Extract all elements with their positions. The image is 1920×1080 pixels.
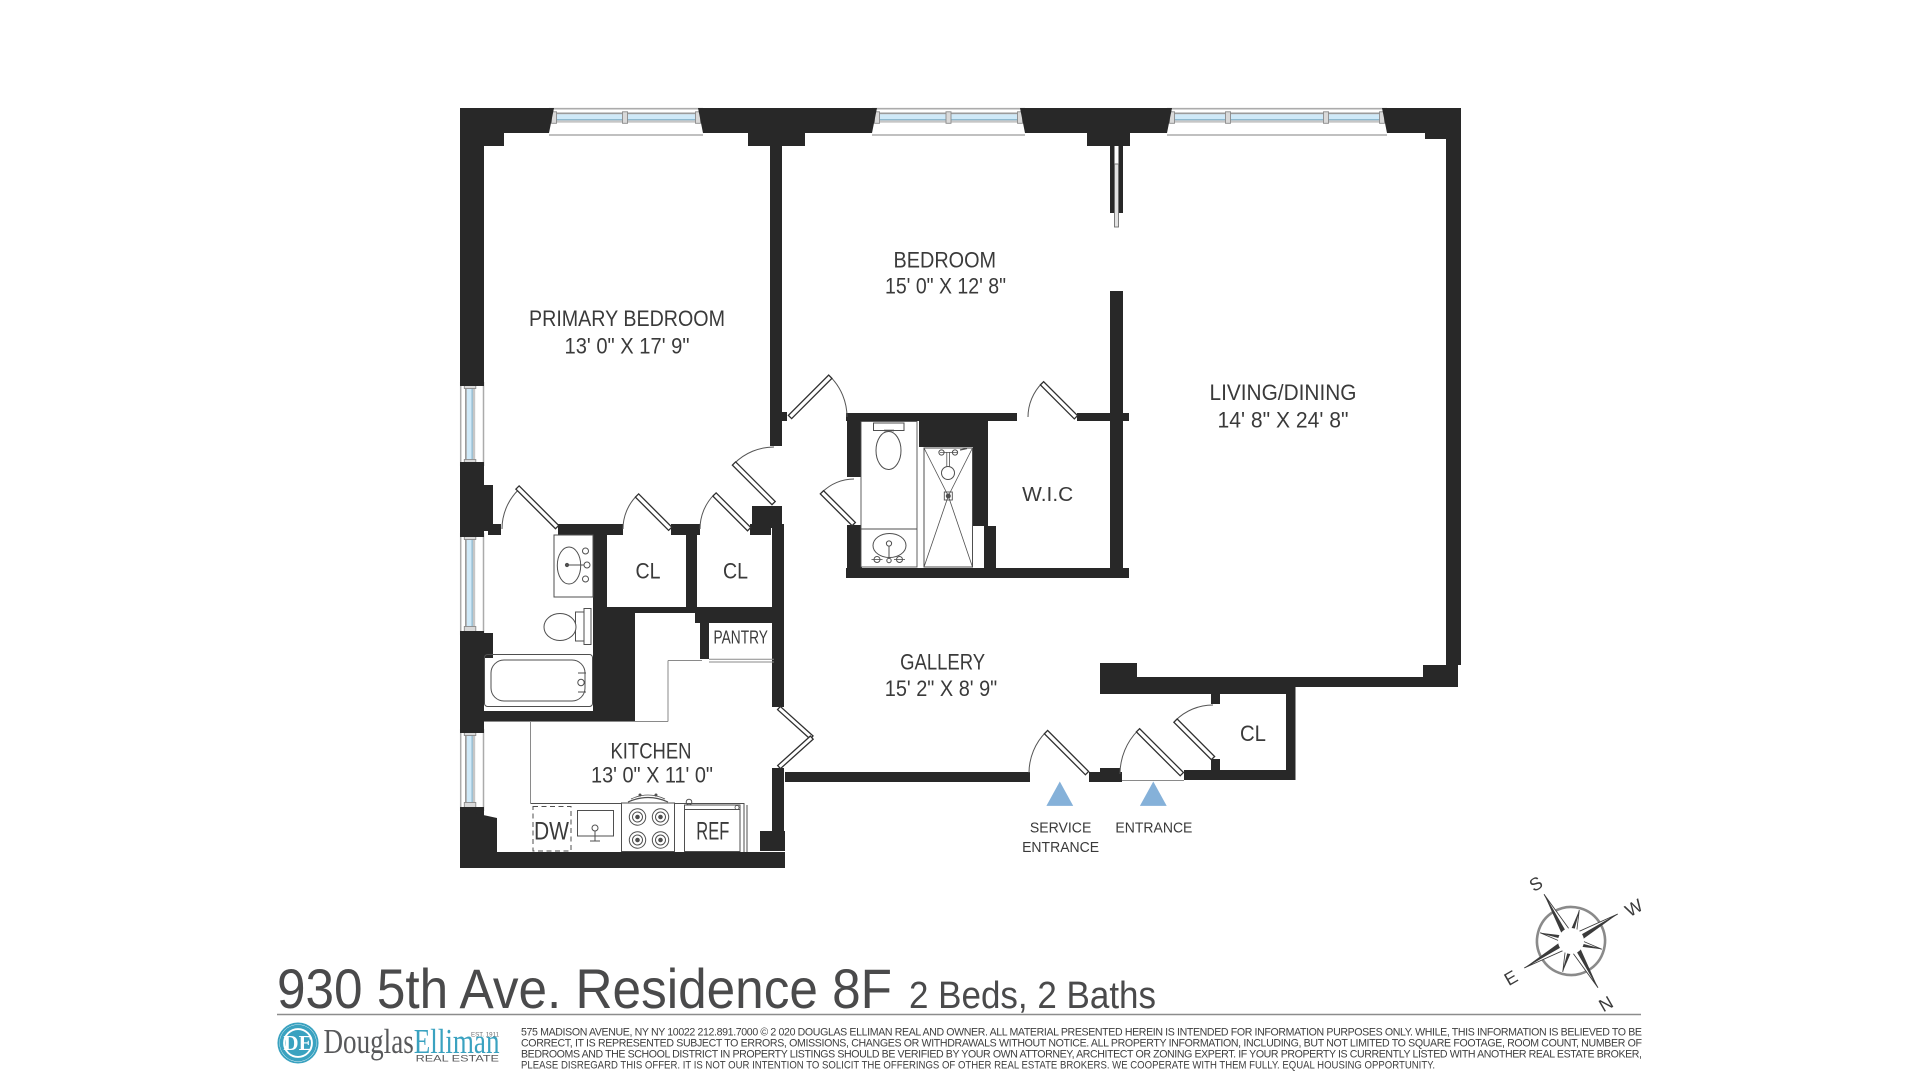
svg-text:DE: DE — [283, 1031, 312, 1055]
svg-text:SERVICE: SERVICE — [1030, 821, 1092, 837]
svg-text:ENTRANCE: ENTRANCE — [1115, 821, 1192, 837]
svg-text:13' 0" X 11' 0": 13' 0" X 11' 0" — [591, 763, 713, 788]
svg-text:KITCHEN: KITCHEN — [611, 739, 692, 764]
svg-text:13' 0" X 17' 9": 13' 0" X 17' 9" — [565, 334, 690, 359]
svg-text:14' 8" X 24' 8": 14' 8" X 24' 8" — [1218, 408, 1349, 433]
svg-text:CL: CL — [636, 559, 661, 584]
svg-text:BEDROOM: BEDROOM — [894, 248, 997, 273]
svg-text:REF: REF — [696, 818, 729, 846]
svg-text:15' 0" X 12' 8": 15' 0" X 12' 8" — [885, 273, 1006, 298]
svg-text:GALLERY: GALLERY — [900, 649, 985, 674]
svg-text:CL: CL — [1240, 721, 1266, 746]
svg-text:CL: CL — [723, 559, 748, 584]
svg-text:930 5th Ave. Residence 8F: 930 5th Ave. Residence 8F — [277, 957, 892, 1020]
svg-text:15' 2" X 8' 9": 15' 2" X 8' 9" — [885, 676, 998, 701]
svg-text:REAL ESTATE: REAL ESTATE — [416, 1054, 499, 1065]
svg-text:ENTRANCE: ENTRANCE — [1022, 840, 1099, 856]
svg-text:PANTRY: PANTRY — [714, 628, 768, 648]
svg-text:EST. 1911: EST. 1911 — [471, 1031, 499, 1038]
svg-text:DW: DW — [534, 818, 569, 846]
svg-text:LIVING/DINING: LIVING/DINING — [1210, 380, 1357, 405]
svg-text:2 Beds, 2 Baths: 2 Beds, 2 Baths — [909, 975, 1156, 1017]
svg-text:PLEASE DISREGARD THIS OFFER. I: PLEASE DISREGARD THIS OFFER. IT IS NOT O… — [521, 1059, 1435, 1071]
svg-text:PRIMARY BEDROOM: PRIMARY BEDROOM — [529, 306, 725, 331]
svg-text:W.I.C: W.I.C — [1022, 484, 1073, 506]
